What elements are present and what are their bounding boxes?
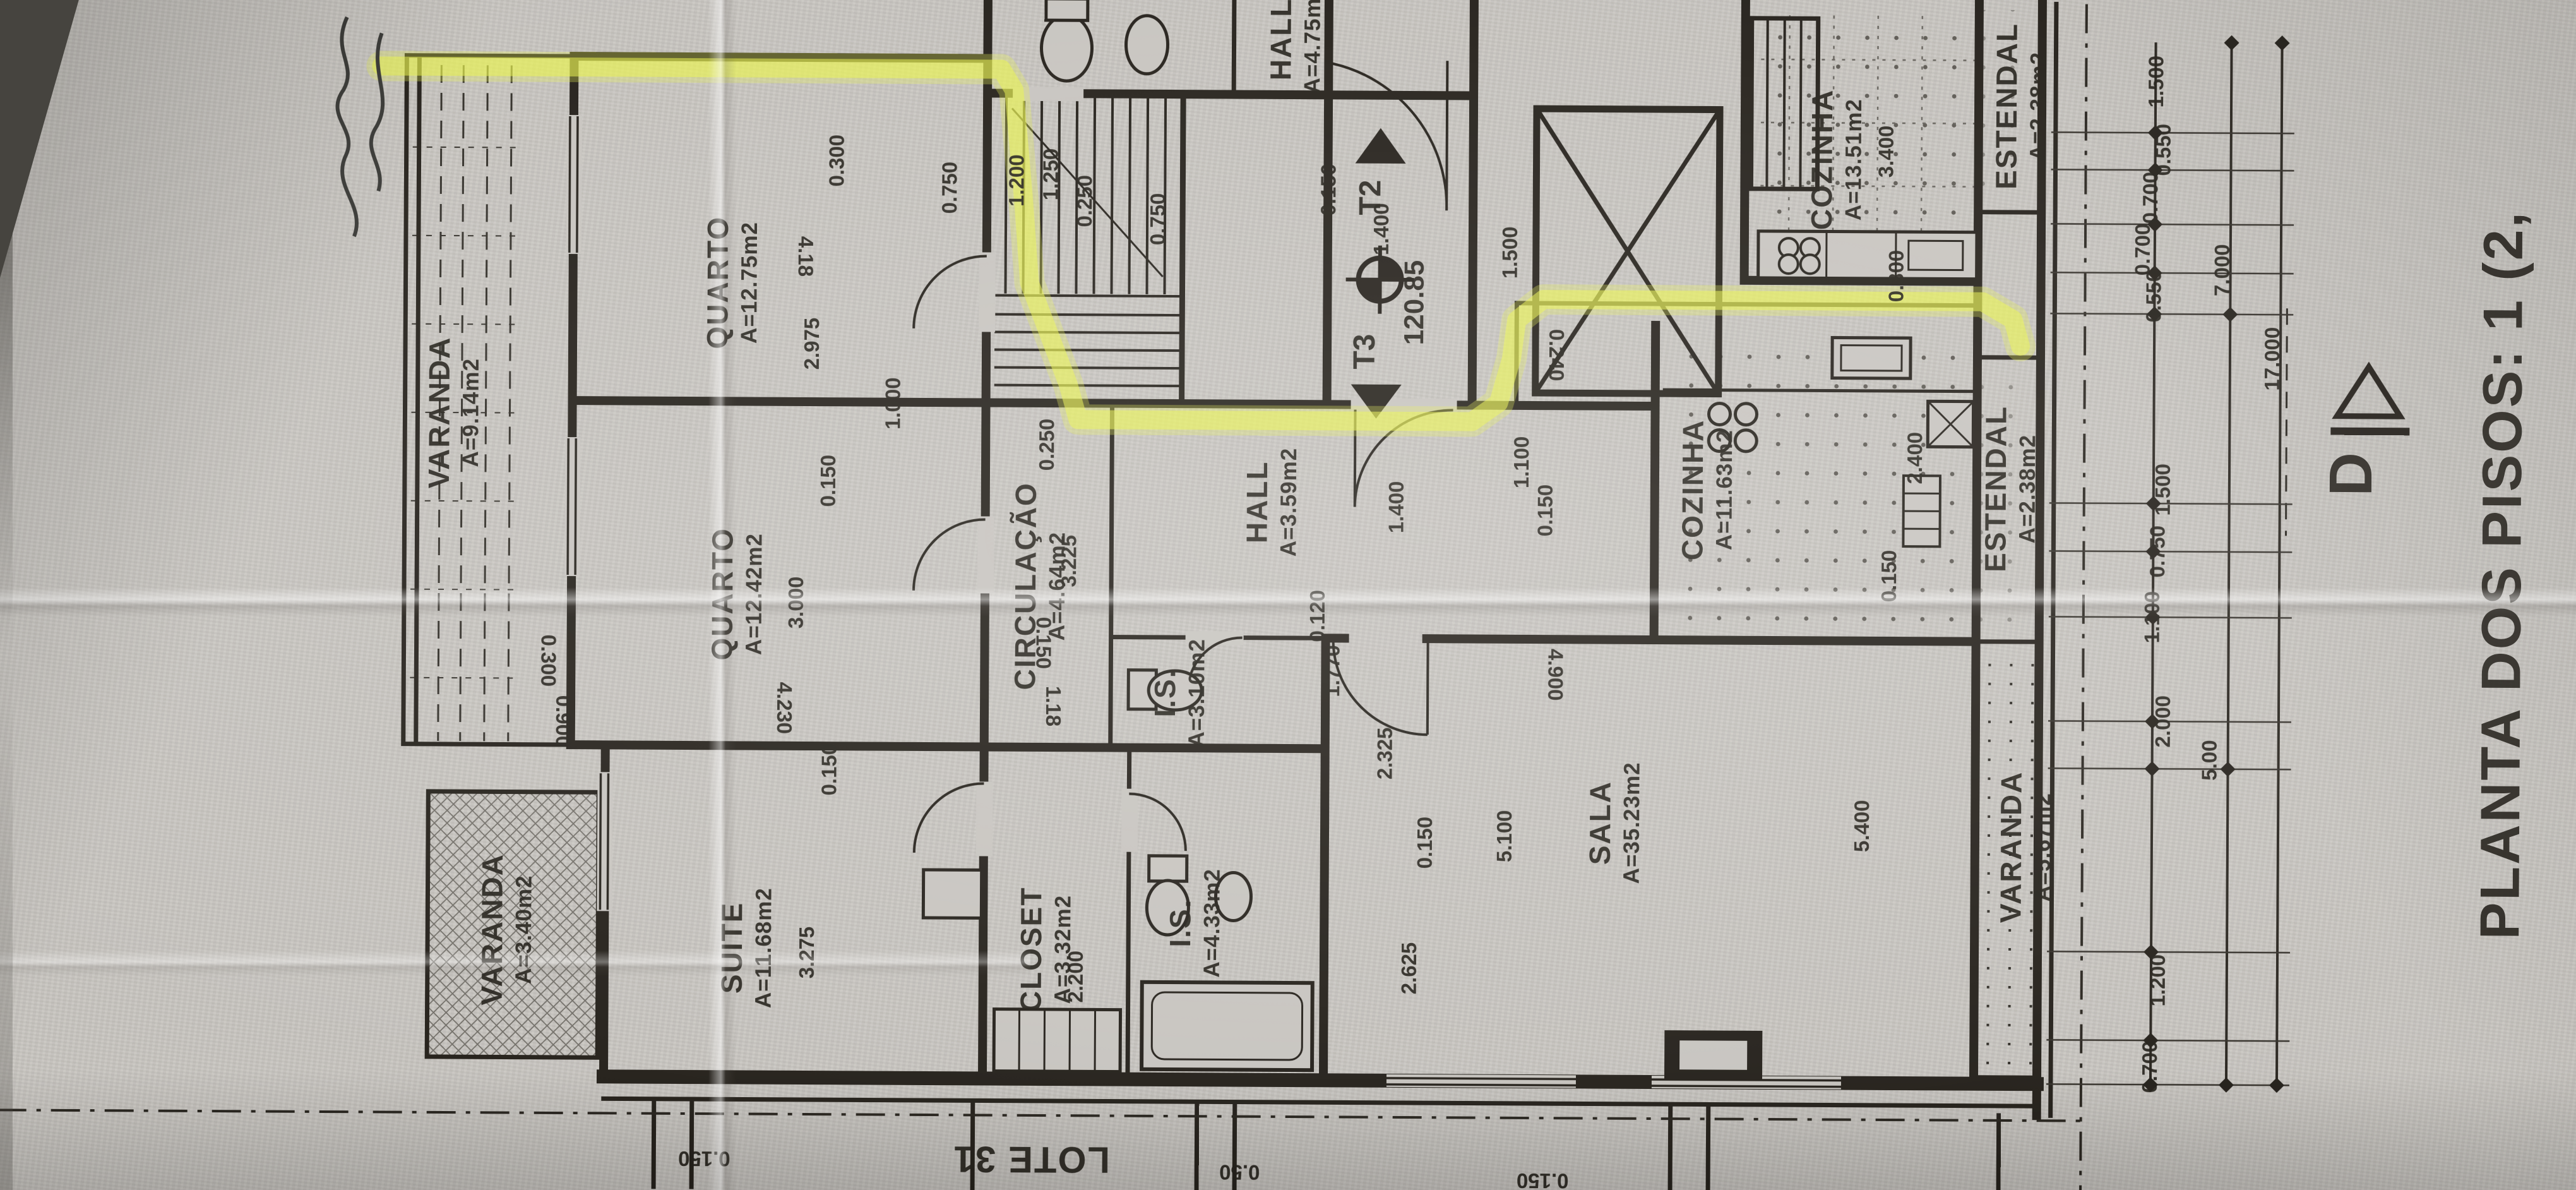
drawing-title: PLANTA DOS PISOS: 1 (2, [2468,210,2534,940]
dimension-label: 1.500 [2144,56,2168,108]
dimension-tick [2222,307,2238,322]
dimension-label: 0.150 [817,743,840,796]
room-label-name: VARANDA [1994,771,2027,923]
dimension-label: 3.225 [1057,535,1080,587]
section-marker: D [2317,367,2410,496]
room-label-area: A=11.68m2 [751,887,777,1008]
dimension-label: 1.400 [1385,481,1408,534]
dimension-label: 0.700 [2138,172,2162,224]
dimension-label: 4.18 [794,236,818,277]
dimension-label: 0.550 [2151,124,2174,176]
extension-line [2049,616,2292,618]
dimension-label: 0.700 [2131,224,2154,276]
room-label-area: A=11.63m2 [1712,430,1737,550]
dimension-label: 3.400 [1874,126,1897,178]
dimension-label: 0.750 [1146,193,1169,246]
dimension-label: 1.18 [1042,686,1065,726]
room-label-area: A=2.38m2 [2026,52,2051,161]
dimension-label: 1.500 [1498,226,1522,279]
room-label-name: QUARTO [701,216,734,349]
dimension-label: 1.100 [1510,436,1533,489]
dimension-label: 1.000 [881,377,904,430]
dimension-tick [2275,35,2290,51]
dimension-tick [2224,35,2239,51]
dimension-label: 1.500 [2151,464,2174,516]
dimension-label: 0.150 [816,455,840,507]
room-label-area: A=2.38m2 [2015,435,2040,544]
dimension-label: 0.250 [1035,419,1058,471]
dimension-chain-lines [2150,42,2282,1085]
room-label-area: A=5.67m2 [2030,793,2055,902]
room-label-area: A=4.75m2 [1300,0,1325,94]
dimension-tick [2219,1078,2234,1093]
extension-line [2051,224,2294,225]
dimension-tick [2269,1078,2284,1093]
t2-arrow-icon [1356,128,1406,164]
dimension-label: 7.000 [2210,244,2233,296]
dimension-label: 1.770 [1320,645,1344,697]
dimension-label: 2.400 [1903,432,1926,484]
dimension-label: 2.975 [800,318,823,370]
room-label-name: I.S. [1164,898,1196,947]
stair-divider [1182,94,1184,404]
dimension-label: 17.000 [2260,327,2284,391]
lot-label: LOTE 31 [952,1138,1110,1180]
dimension-label: 0.750 [2145,526,2169,578]
extension-line [2050,313,2293,315]
dimension-label: 1.250 [1039,148,1062,201]
dimension-label: 2.625 [1397,942,1421,995]
room-label-name: SALA [1583,781,1617,865]
closet-shelving [994,1009,1121,1072]
room-label-name: ESTENDAL [1989,23,2023,189]
room-label-name: COZINHA [1676,419,1709,560]
section-letter: D [2317,452,2385,496]
extension-line [2048,768,2291,769]
dimension-label: 0.750 [938,162,961,214]
section-triangle-icon [2337,367,2400,417]
property-line-horizontal [0,1110,2081,1121]
dimension-label: 0.700 [2138,1041,2161,1093]
dimension-label: 5.400 [1850,800,1873,852]
dimension-label: 3.275 [795,927,818,979]
dimension-label: 4.900 [1544,649,1567,701]
dimension-tick [2145,761,2160,776]
room-label-name: HALL [1264,0,1297,80]
wc-toilet [1041,15,1092,81]
dimension-label: 5.00 [2197,740,2221,780]
dimension-label: 1.200 [2146,954,2169,1007]
dimension-label: 0.150 [1032,617,1055,670]
level-value: 120.85 [1398,260,1430,346]
dimension-tick [2221,762,2236,777]
dimension-label: 3.000 [784,577,808,629]
dimension-label: 0.900 [552,695,575,748]
dimension-label: 0.250 [1073,175,1096,227]
kitchen-top-sink [1909,241,1963,270]
room-label-name: COZINHA [1805,89,1839,231]
dimension-label: 0.550 [2142,270,2165,323]
dimension-label: 4.230 [773,682,796,734]
wc-bidet [1126,16,1167,74]
room-label-area: A=3.40m2 [511,875,537,984]
dimension-label: 2.325 [1373,727,1396,779]
dimension-label: 0.300 [537,634,560,687]
dimension-label: 0.50 [1219,1160,1260,1184]
dimension-label: 1.400 [1369,203,1393,255]
pen-scribble [337,17,383,236]
room-label-name: QUARTO [705,527,739,661]
dimension-label: 0.150 [1413,817,1436,869]
room-label-name: ESTENDAL [1979,406,2012,572]
room-label-name: VARANDA [475,853,509,1006]
dimension-label: 0.240 [1545,329,1568,382]
t3-label: T3 [1348,334,1381,369]
extension-line [2046,1084,2289,1085]
room-label-area: A=3.59m2 [1276,448,1301,557]
room-label-name: SUITE [715,902,749,994]
extension-line [2046,1040,2289,1041]
room-label-area: A=4.33m2 [1200,868,1225,978]
dimension-label: 0.150 [1316,164,1340,216]
room-label-area: A=13.51m2 [1841,99,1866,220]
room-label-name: CLOSET [1015,886,1048,1012]
room-label-area: A=35.23m2 [1619,762,1645,884]
dimension-label: 0.150 [1877,550,1900,603]
room-label-area: A=3.10m2 [1184,639,1210,748]
dimension-label: 0.300 [825,135,848,187]
room-label-area: A=9.14m2 [458,358,484,467]
dimension-label: 2.200 [1064,951,1087,1003]
dimension-label: 0.300 [1884,250,1907,303]
dimension-label: 1.200 [1005,154,1028,207]
room-label-name: VARANDA [422,337,456,489]
extension-line [2051,272,2294,273]
extension-line [2049,551,2292,552]
room-label-name: I.S. [1148,668,1181,717]
dimension-label: 0.150 [1533,484,1556,537]
floorplan-drawing: T2 120.85 T3 D VARANDAA=9.14m2QUARTOA=12… [0,0,2576,1190]
dimension-label: 0.120 [1306,590,1329,642]
dimension-label: 2.000 [2151,695,2174,748]
floor-plan-photo: { "document": { "kind": "photographed ar… [0,0,2576,1190]
dimension-label: 5.100 [1493,810,1516,862]
extension-line [2047,951,2290,953]
dimension-label: 0.150 [1517,1169,1569,1190]
dimension-label: 0.150 [678,1147,730,1170]
dresser [923,870,981,918]
dimension-label: 1.100 [2140,591,2164,644]
room-label-area: A=12.75m2 [737,222,762,344]
room-label-name: HALL [1240,460,1273,543]
unit-markers: T2 120.85 T3 [1345,128,1430,419]
property-line-vertical [2080,4,2087,1190]
room-label-area: A=12.42m2 [741,533,766,655]
kitchen-low-counter-edge [1663,390,1976,392]
